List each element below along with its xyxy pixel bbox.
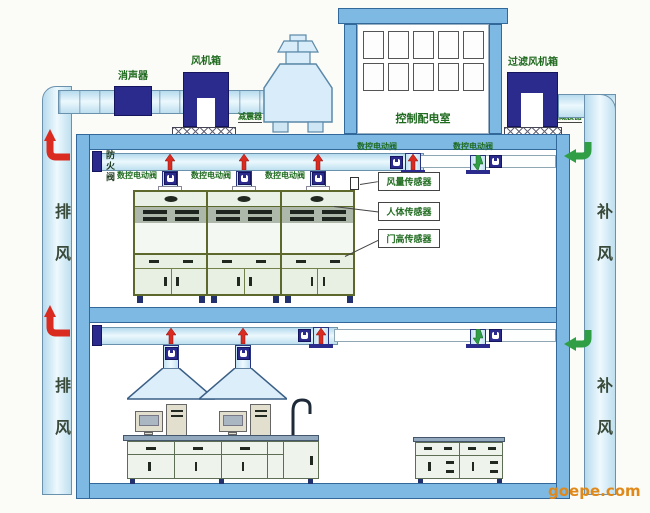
control-room-roof bbox=[338, 8, 508, 24]
electrical-panel bbox=[413, 31, 434, 59]
cnc-valve-icon bbox=[237, 347, 250, 360]
electrical-panel bbox=[463, 63, 484, 91]
electrical-panel bbox=[438, 63, 459, 91]
up-arrow-icon bbox=[166, 328, 176, 344]
computer-tower bbox=[250, 404, 271, 437]
control-room-right-column bbox=[489, 24, 502, 134]
control-room-left-column bbox=[344, 24, 357, 134]
up-arrow-icon bbox=[238, 328, 248, 344]
roof-slab bbox=[76, 134, 570, 150]
airflow-sensor-callout: 风量传感器 bbox=[378, 172, 440, 191]
right-wall bbox=[556, 134, 570, 499]
ground-slab bbox=[76, 483, 570, 499]
grille-flange bbox=[309, 344, 333, 348]
control-room-label: 控制配电室 bbox=[358, 113, 488, 125]
down-arrow-icon bbox=[473, 329, 483, 345]
monitor bbox=[135, 411, 163, 432]
cnc-valve-icon bbox=[164, 172, 177, 185]
silencer-box bbox=[114, 86, 152, 116]
electrical-panels bbox=[363, 31, 488, 91]
canopy-hood bbox=[199, 368, 287, 400]
door-height-sensor-callout: 门高传感器 bbox=[378, 229, 440, 248]
cnc-valve-icon bbox=[165, 347, 178, 360]
lab-bench bbox=[415, 442, 503, 479]
hood-cabinet bbox=[282, 253, 353, 294]
hood-sash bbox=[208, 223, 279, 253]
fire-damper-2 bbox=[92, 325, 102, 346]
sink-cabinet bbox=[283, 441, 319, 479]
fire-damper-1 bbox=[92, 151, 102, 172]
faucet-icon bbox=[288, 395, 314, 439]
hood-cabinet bbox=[135, 253, 206, 294]
ventilation-system-diagram: 消声器 风机箱 减震器 控制配电室 过滤风机箱 bbox=[0, 0, 650, 513]
cnc-valve-icon bbox=[312, 172, 325, 185]
cnc-valve-label: 数控电动阀 bbox=[265, 172, 305, 180]
cnc-valve-label: 数控电动阀 bbox=[117, 172, 157, 180]
electrical-panel bbox=[388, 63, 409, 91]
mid-floor-slab bbox=[76, 307, 570, 323]
floor2-supply-branch-duct bbox=[334, 329, 556, 342]
exhaust-air-label-1: 排风 bbox=[49, 203, 73, 287]
fume-hood-bay bbox=[135, 192, 206, 294]
up-arrow-icon bbox=[165, 154, 175, 170]
exhaust-flow-arrow-icon bbox=[44, 304, 70, 338]
exhaust-stack bbox=[256, 34, 340, 134]
computer-tower bbox=[166, 404, 187, 437]
airflow-sensor-device bbox=[350, 177, 359, 190]
filter-fan-box-opening bbox=[521, 93, 543, 127]
electrical-panel bbox=[413, 63, 434, 91]
human-sensor-callout: 人体传感器 bbox=[378, 202, 440, 221]
floor1-supply-branch-duct bbox=[420, 155, 556, 168]
floor1-exhaust-duct bbox=[92, 153, 424, 171]
left-wall bbox=[76, 134, 90, 499]
filter-fan-box-label: 过滤风机箱 bbox=[496, 57, 570, 68]
cnc-valve-label: 数控电动阀 bbox=[453, 143, 493, 151]
sensor-dot bbox=[237, 196, 250, 202]
fume-hood-bay bbox=[206, 192, 279, 294]
up-arrow-icon bbox=[316, 328, 326, 344]
fan-box-opening bbox=[197, 98, 215, 127]
cnc-valve-label: 数控电动阀 bbox=[191, 172, 231, 180]
silencer-label: 消声器 bbox=[106, 71, 160, 82]
hood-cabinet bbox=[208, 253, 279, 294]
exhaust-flow-arrow-icon bbox=[44, 128, 70, 162]
fire-damper-label: 防火阀 bbox=[104, 150, 113, 183]
up-arrow-icon bbox=[239, 154, 249, 170]
fume-hoods bbox=[133, 190, 355, 296]
exhaust-air-label-2: 排风 bbox=[49, 377, 73, 461]
watermark: goepe.com bbox=[548, 482, 641, 500]
fan-box-label: 风机箱 bbox=[178, 56, 234, 67]
hood-sash bbox=[135, 223, 206, 253]
electrical-panel bbox=[363, 63, 384, 91]
electrical-panel bbox=[363, 31, 384, 59]
cnc-valve-icon bbox=[390, 156, 403, 169]
up-arrow-icon bbox=[408, 154, 418, 170]
control-room: 控制配电室 bbox=[357, 24, 489, 134]
hood-sash bbox=[282, 223, 353, 253]
sensor-dot bbox=[311, 196, 324, 202]
supply-flow-arrow-icon bbox=[564, 330, 594, 358]
electrical-panel bbox=[438, 31, 459, 59]
rooftop-exhaust-duct bbox=[58, 90, 266, 114]
down-arrow-icon bbox=[473, 155, 483, 171]
sensor-dot bbox=[164, 196, 177, 202]
monitor bbox=[219, 411, 247, 432]
electrical-panel bbox=[388, 31, 409, 59]
up-arrow-icon bbox=[313, 154, 323, 170]
electrical-panel bbox=[463, 31, 484, 59]
cnc-valve-icon bbox=[489, 329, 502, 342]
supply-air-label-2: 补风 bbox=[591, 377, 615, 461]
cnc-valve-icon bbox=[238, 172, 251, 185]
cnc-valve-icon bbox=[489, 155, 502, 168]
supply-flow-arrow-icon bbox=[564, 142, 594, 170]
cnc-valve-label: 数控电动阀 bbox=[357, 143, 397, 151]
cnc-valve-icon bbox=[298, 329, 311, 342]
supply-air-label-1: 补风 bbox=[591, 203, 615, 287]
